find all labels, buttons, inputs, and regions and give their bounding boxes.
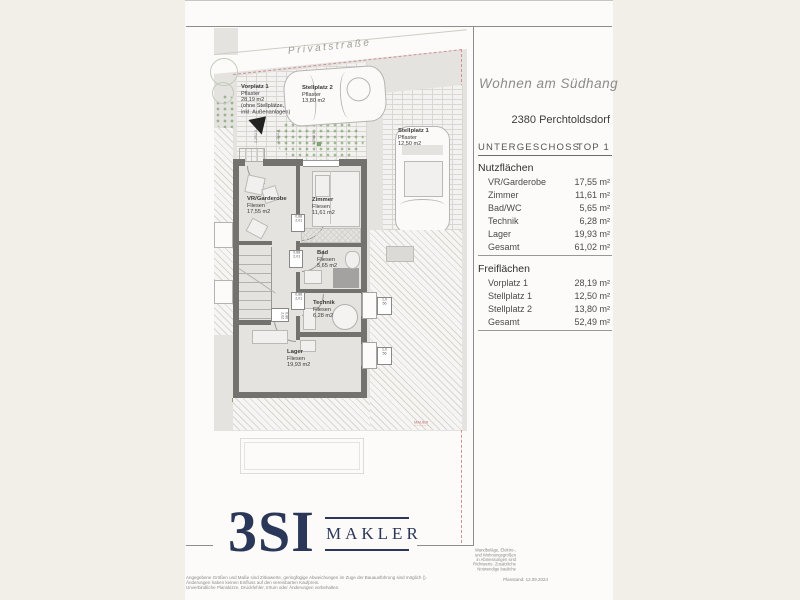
row-value: 5,65 m² — [579, 203, 610, 213]
disclaimer-line: Unverbindliche Planskizze, Druckfehler, … — [186, 585, 339, 590]
downpipe-marker — [317, 142, 321, 146]
window-top — [303, 160, 339, 167]
outdoor-area: 13,80 m2 — [302, 97, 325, 103]
wall-interior — [300, 243, 367, 247]
table-row: VR/Garderobe 17,55 m² — [488, 177, 610, 187]
section-rule — [478, 255, 612, 256]
room-area: 11,61 m2 — [312, 209, 335, 215]
washbasin — [304, 270, 322, 284]
room-name: Bad — [317, 249, 328, 256]
outdoor-area: 12,50 m2 — [398, 140, 421, 146]
label-stellplatz2: Stellplatz 2 Pflaster 13,80 m2 — [302, 84, 333, 103]
table-row: Stellplatz 2 13,80 m² — [488, 304, 610, 314]
row-label: Bad/WC — [488, 203, 522, 213]
label-vorplatz1: Vorplatz 1 Pflaster 28,19 m2 (ohne Stell… — [241, 83, 290, 115]
row-label: Gesamt — [488, 317, 520, 327]
neighbor-bay — [214, 222, 233, 248]
tag-height: 2,01 — [293, 254, 300, 258]
room-area: 5,65 m2 — [317, 262, 337, 268]
table-row: Stellplatz 1 12,50 m² — [488, 291, 610, 301]
frame-divider — [473, 26, 474, 546]
logo-line-top — [325, 517, 409, 519]
tag-height: 2,02 — [281, 312, 285, 319]
plan-date: Planstand: 12.09.2024 — [454, 577, 548, 582]
row-label: Technik — [488, 216, 519, 226]
door-tag: 0,88 2,01 — [291, 292, 305, 310]
room-area: 6,28 m2 — [313, 312, 333, 318]
tag-height: 2,01 — [295, 218, 302, 222]
door-tag: 0,88 2,01 — [289, 250, 303, 268]
car-steering-circle — [346, 77, 372, 103]
car-windshield — [402, 145, 443, 155]
row-label: Gesamt — [488, 242, 520, 252]
logo-makler: MAKLER — [326, 524, 422, 544]
label-room-vr: VR/Garderobe Fliesen 17,55 m2 — [247, 195, 287, 214]
outdoor-note: inkl. Außenanlagen) — [241, 108, 290, 114]
window-sill — [362, 342, 377, 369]
row-label: Lager — [488, 229, 511, 239]
row-value: 17,55 m² — [574, 177, 610, 187]
table-row: Technik 6,28 m² — [488, 216, 610, 226]
row-value: 11,61 m² — [575, 190, 610, 200]
tag-height: 56 — [382, 301, 386, 305]
shower — [333, 268, 359, 288]
outdoor-name: Vorplatz 1 — [241, 83, 269, 90]
wall-interior — [300, 289, 361, 293]
wall-interior — [296, 166, 300, 214]
wc — [345, 251, 360, 269]
row-label: Stellplatz 2 — [488, 304, 532, 314]
door-tag: 0,88 2,01 — [291, 214, 305, 232]
footer-rule-right — [417, 545, 474, 546]
outdoor-name: Stellplatz 2 — [302, 84, 333, 91]
room-name: Technik — [313, 299, 335, 306]
label-room-lager: Lager Fliesen 19,93 m2 — [287, 348, 310, 367]
table-row: Vorplatz 1 28,19 m² — [488, 278, 610, 288]
frame-top-rule — [186, 26, 612, 27]
floorplan-page: Wohnen am Südhang 2380 Perchtoldsdorf UN… — [0, 0, 800, 600]
row-label: Zimmer — [488, 190, 519, 200]
window-sill — [362, 292, 377, 319]
pillow — [315, 175, 330, 197]
table-row-total: Gesamt 52,49 m² — [488, 317, 610, 327]
tag-height: 2,01 — [295, 296, 302, 300]
row-label: VR/Garderobe — [488, 177, 546, 187]
logo-3si: 3SI — [228, 498, 315, 565]
room-name: VR/Garderobe — [247, 195, 287, 202]
wall-note: MAUER — [414, 420, 428, 426]
car-roof — [404, 161, 443, 197]
label-room-zimmer: Zimmer Fliesen 11,61 m2 — [312, 196, 335, 215]
terrace-outline-inner — [244, 442, 360, 470]
row-value: 52,49 m² — [574, 317, 610, 327]
unit-label: TOP 1 — [478, 142, 610, 153]
disclaimer-right: Wandbeläge, Elektro-, und Wohnungsgrößen… — [461, 548, 516, 571]
row-value: 12,50 m² — [574, 291, 610, 301]
window-tag: 1,0 56 — [377, 297, 392, 315]
tag-width: 0,80 — [284, 312, 288, 319]
ground-hatch-south — [233, 398, 370, 430]
disclaimer-line: Notwendige bauliche — [477, 567, 516, 572]
wall-interior — [233, 241, 272, 245]
room-name: Lager — [287, 348, 303, 355]
table-row-total: Gesamt 61,02 m² — [488, 242, 610, 252]
project-title: Wohnen am Südhang — [479, 76, 618, 91]
logo-line-bottom — [325, 549, 409, 551]
table-row: Lager 19,93 m² — [488, 229, 610, 239]
door-tag-stair: 0,80 2,02 — [271, 308, 289, 322]
terrace-hatch — [370, 230, 462, 430]
header-underline — [478, 155, 612, 156]
car-stellplatz2 — [282, 65, 388, 128]
wall-bottom — [233, 392, 367, 398]
wall — [263, 159, 303, 166]
neighbor-bay — [214, 280, 233, 304]
row-label: Vorplatz 1 — [488, 278, 528, 288]
section-title-freiflaechen: Freiflächen — [478, 263, 530, 275]
dimension-tag: 1,25/2,5 — [276, 130, 280, 143]
label-room-bad: Bad Fliesen 5,65 m2 — [317, 249, 337, 268]
boiler — [332, 304, 358, 330]
row-value: 13,80 m² — [574, 304, 610, 314]
table-row: Bad/WC 5,65 m² — [488, 203, 610, 213]
room-area: 17,55 m2 — [247, 208, 270, 214]
wall-interior — [300, 332, 361, 337]
disclaimer-left: Angegebene Größen und Maße sind Zirkawer… — [186, 575, 466, 590]
label-stellplatz1: Stellplatz 1 Pflaster 12,50 m2 — [398, 127, 429, 146]
car-rear-line — [400, 199, 445, 212]
row-value: 61,02 m² — [574, 242, 610, 252]
outdoor-name: Stellplatz 1 — [398, 127, 429, 134]
dimension-tag: 1,25/2,5 — [254, 130, 258, 143]
dimension-tag: 1,25/2,5 — [312, 132, 316, 145]
row-label: Stellplatz 1 — [488, 291, 532, 301]
tree-outline — [212, 82, 234, 104]
table-row: Zimmer 11,61 m² — [488, 190, 610, 200]
room-name: Zimmer — [312, 196, 333, 203]
section-rule — [478, 330, 612, 331]
label-room-technik: Technik Fliesen 6,28 m2 — [313, 299, 335, 318]
section-title-nutzflaechen: Nutzflächen — [478, 162, 533, 174]
room-area: 19,93 m2 — [287, 361, 310, 367]
wardrobe-hatch — [301, 228, 361, 243]
wall-interior — [233, 320, 271, 325]
window-tag: 1,0 56 — [377, 347, 392, 365]
project-location: 2380 Perchtoldsdorf — [472, 114, 610, 126]
row-value: 19,93 m² — [574, 229, 610, 239]
row-value: 28,19 m² — [574, 278, 610, 288]
outdoor-unit-box — [386, 246, 414, 262]
lager-shelf — [252, 330, 288, 344]
tag-height: 56 — [382, 351, 386, 355]
row-value: 6,28 m² — [579, 216, 610, 226]
staircase — [239, 247, 272, 320]
footer-rule-left — [186, 545, 213, 546]
